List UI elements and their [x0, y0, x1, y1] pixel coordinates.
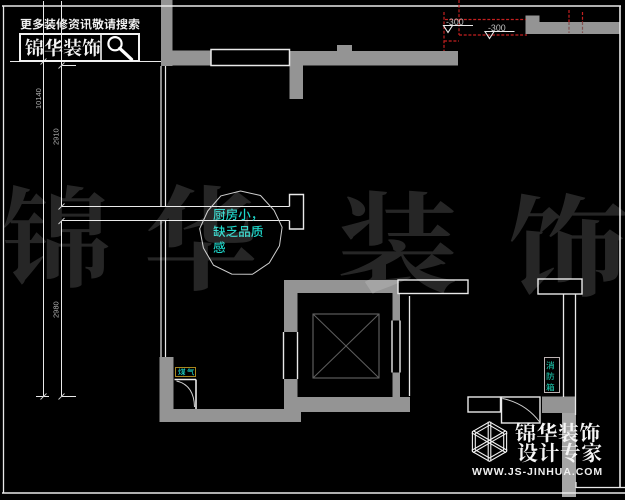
svg-text:10140: 10140 [34, 88, 43, 109]
svg-text:2980: 2980 [52, 301, 61, 318]
svg-text:2910: 2910 [52, 128, 61, 145]
svg-text:-300: -300 [488, 23, 506, 33]
svg-text:-300: -300 [446, 17, 464, 27]
